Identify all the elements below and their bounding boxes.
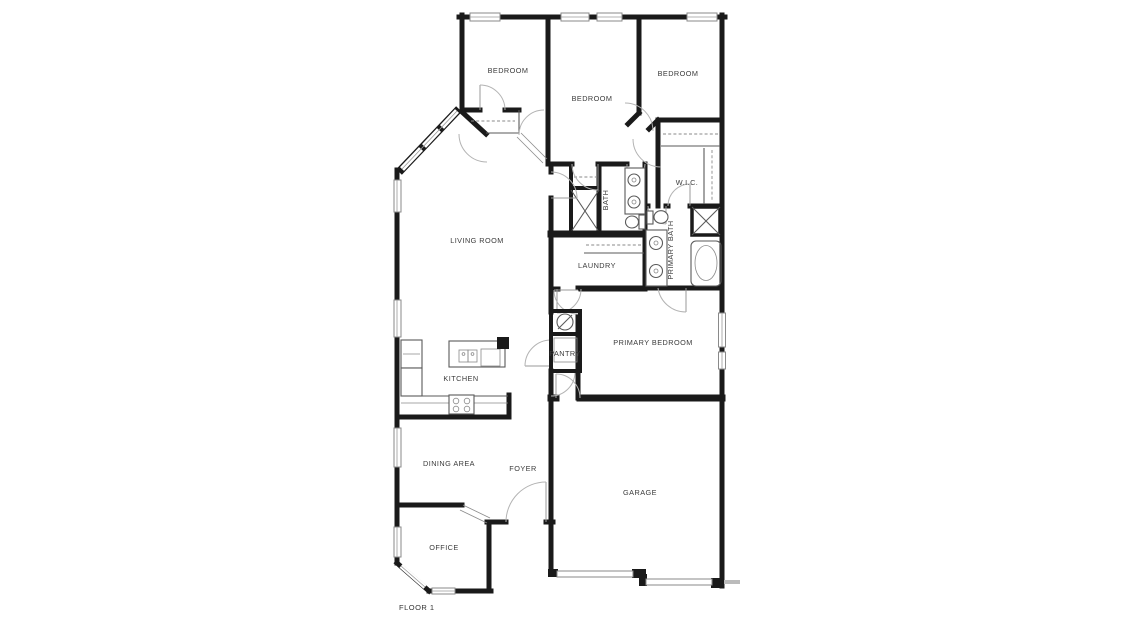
floor-plan-page: BEDROOM BEDROOM BEDROOM W.I.C. BATH PRIM… [0, 0, 1121, 630]
floor-label: FLOOR 1 [399, 603, 435, 612]
floor-plan-svg: BEDROOM BEDROOM BEDROOM W.I.C. BATH PRIM… [0, 0, 1121, 630]
laundry-shelf [584, 245, 644, 253]
room-label-bedroom-top-left: BEDROOM [488, 66, 529, 75]
window [394, 428, 401, 467]
door-entry [506, 482, 546, 522]
column [497, 337, 509, 349]
door-primary-bedroom [658, 288, 686, 312]
room-label-primary-bath: PRIMARY BATH [666, 220, 675, 279]
window [432, 588, 455, 594]
window [470, 13, 500, 21]
room-label-dining-area: DINING AREA [423, 459, 475, 468]
door-wic [668, 184, 690, 206]
window-diagonal-office [401, 566, 425, 587]
toilet-bowl [626, 216, 639, 228]
garage-door [646, 579, 712, 585]
doors [459, 85, 690, 522]
room-label-wic: W.I.C. [676, 178, 699, 187]
bath-fixtures [625, 168, 645, 229]
room-label-foyer: FOYER [509, 464, 536, 473]
shower [692, 207, 720, 235]
window [597, 13, 622, 21]
window [719, 352, 726, 369]
room-label-office: OFFICE [429, 543, 458, 552]
room-label-primary-bedroom: PRIMARY BEDROOM [613, 338, 692, 347]
toilet-tank [639, 215, 645, 229]
room-label-kitchen: KITCHEN [443, 374, 478, 383]
counter-left [401, 368, 422, 396]
door-bedroom-1 [480, 85, 505, 110]
window [561, 13, 589, 21]
room-label-garage: GARAGE [623, 488, 657, 497]
window [394, 180, 401, 212]
stove [449, 395, 474, 414]
door-dining-hall [551, 372, 575, 396]
window [394, 300, 401, 337]
door-pantry [525, 340, 551, 366]
window [687, 13, 717, 21]
window-diagonal-top-left [399, 109, 459, 172]
window [394, 527, 401, 557]
room-label-laundry: LAUNDRY [578, 261, 616, 270]
garage-door [557, 571, 633, 577]
kitchen-island [449, 337, 509, 367]
primary-bath-fixtures [646, 207, 721, 286]
room-label-pantry: PANTRY [549, 349, 581, 358]
room-label-bedroom-top-middle: BEDROOM [572, 94, 613, 103]
room-label-bath: BATH [601, 190, 610, 211]
bathtub [691, 241, 721, 286]
toilet-tank [647, 211, 653, 224]
window [719, 313, 726, 347]
room-label-living-room: LIVING ROOM [450, 236, 504, 245]
room-label-bedroom-top-right: BEDROOM [658, 69, 699, 78]
